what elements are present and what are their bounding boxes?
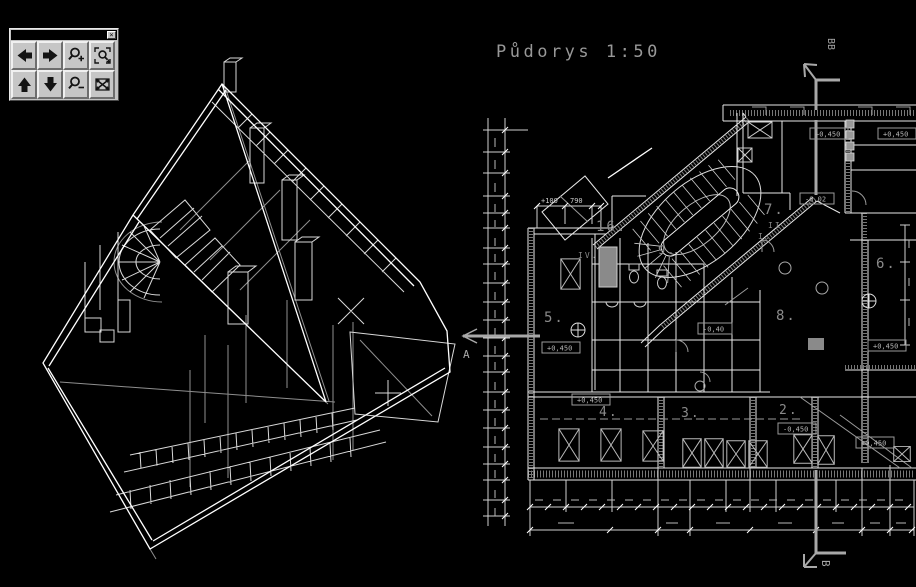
toolbar-titlebar[interactable]: × bbox=[11, 30, 117, 40]
close-icon[interactable]: × bbox=[107, 31, 116, 39]
plumbing-fixtures bbox=[571, 107, 910, 391]
pan-down-button[interactable] bbox=[37, 70, 63, 99]
cad-canvas: Půdorys 1:50 bbox=[0, 0, 916, 587]
svg-text:-0,450: -0,450 bbox=[783, 426, 808, 434]
spiral-staircase bbox=[619, 145, 781, 299]
zoom-extents-icon bbox=[93, 75, 112, 94]
arrow-left-icon bbox=[15, 46, 34, 65]
room-label: 3. bbox=[681, 406, 701, 421]
section-label-bb: BB bbox=[825, 38, 836, 50]
elevation-markers: +0,450 +0,450 -0,02 +0,450 +0,450 -0,40 … bbox=[542, 128, 916, 448]
room-label: 5. bbox=[544, 310, 565, 326]
room-label: 9. bbox=[658, 243, 676, 257]
room-label: 7. bbox=[764, 202, 785, 218]
zoom-extents-button[interactable] bbox=[89, 70, 115, 99]
iso-wireframe-view bbox=[43, 58, 652, 559]
arrow-up-icon bbox=[15, 75, 34, 94]
svg-text:+0,450: +0,450 bbox=[577, 397, 602, 405]
zoom-window-button[interactable] bbox=[89, 41, 115, 70]
floor-plan-view: +100 790 A BB B 16. 5. 9. 7. 6. 8. 4. 3.… bbox=[463, 38, 916, 567]
magnifier-window-icon bbox=[93, 46, 112, 65]
room-label: I. bbox=[758, 232, 772, 241]
svg-text:-0,40: -0,40 bbox=[703, 326, 724, 334]
room-label: IV. bbox=[578, 251, 598, 260]
room-label: 6. bbox=[876, 256, 897, 272]
svg-text:-0,02: -0,02 bbox=[805, 196, 826, 204]
drawing-title: Půdorys 1:50 bbox=[496, 41, 661, 62]
room-label: II. bbox=[768, 221, 788, 230]
room-label: 16. bbox=[596, 219, 627, 235]
pan-up-button[interactable] bbox=[11, 70, 37, 99]
magnifier-plus-icon bbox=[67, 46, 86, 65]
arrow-down-icon bbox=[41, 75, 60, 94]
svg-text:+0,450: +0,450 bbox=[873, 343, 898, 351]
svg-text:+0,450: +0,450 bbox=[815, 131, 840, 139]
pan-right-button[interactable] bbox=[37, 41, 63, 70]
pan-left-button[interactable] bbox=[11, 41, 37, 70]
room-label: 4. bbox=[599, 405, 619, 420]
zoom-in-button[interactable] bbox=[63, 41, 89, 70]
dim-label: 790 bbox=[570, 197, 583, 205]
dim-label: +100 bbox=[541, 197, 558, 205]
section-label-b: B bbox=[819, 560, 832, 567]
arrow-right-icon bbox=[41, 46, 60, 65]
window-symbols bbox=[559, 259, 910, 467]
svg-text:+0,450: +0,450 bbox=[883, 131, 908, 139]
nav-toolbar: × bbox=[9, 28, 119, 101]
room-label: 8. bbox=[776, 308, 797, 324]
magnifier-minus-icon bbox=[67, 75, 86, 94]
cad-viewport: Půdorys 1:50 bbox=[0, 0, 916, 587]
section-label-a: A bbox=[463, 348, 470, 361]
room-label: 2. bbox=[779, 403, 799, 418]
zoom-out-button[interactable] bbox=[63, 70, 89, 99]
svg-text:+0,450: +0,450 bbox=[547, 345, 572, 353]
svg-text:+0,450: +0,450 bbox=[861, 440, 886, 448]
